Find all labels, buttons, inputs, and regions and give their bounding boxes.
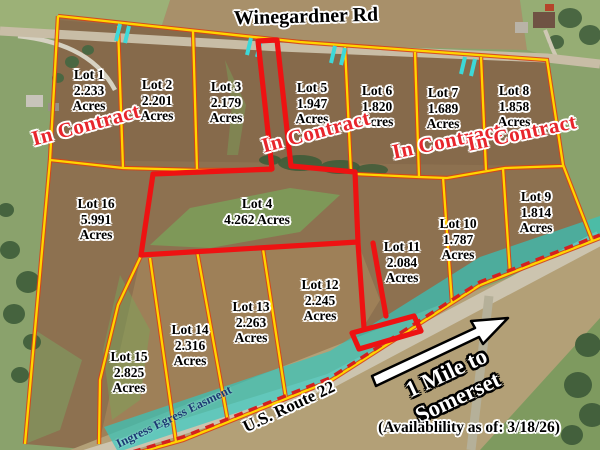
lot-11-label: Lot 112.084Acres xyxy=(384,239,420,286)
lot-15-label: Lot 152.825Acres xyxy=(110,349,147,396)
plat-map: Lot 12.233Acres Lot 22.201Acres Lot 32.1… xyxy=(0,0,600,450)
lot-7-label: Lot 71.689Acres xyxy=(427,85,460,132)
lot-2-label: Lot 22.201Acres xyxy=(141,77,174,124)
lot-4-label: Lot 44.262 Acres xyxy=(224,196,290,227)
availability-note: (Availablility as of: 3/18/26) xyxy=(378,419,560,437)
lot-9-label: Lot 91.814Acres xyxy=(520,189,553,236)
lot-16-label: Lot 165.991Acres xyxy=(77,196,114,243)
lot-1-label: Lot 12.233Acres xyxy=(73,67,106,114)
lot-12-label: Lot 122.245Acres xyxy=(301,277,338,324)
lot-3-label: Lot 32.179Acres xyxy=(210,79,243,126)
lot-13-label: Lot 132.263Acres xyxy=(232,299,269,346)
lot-14-label: Lot 142.316Acres xyxy=(171,322,208,369)
winegardner-rd-label: Winegardner Rd xyxy=(234,4,379,31)
lot-10-label: Lot 101.787Acres xyxy=(439,216,476,263)
